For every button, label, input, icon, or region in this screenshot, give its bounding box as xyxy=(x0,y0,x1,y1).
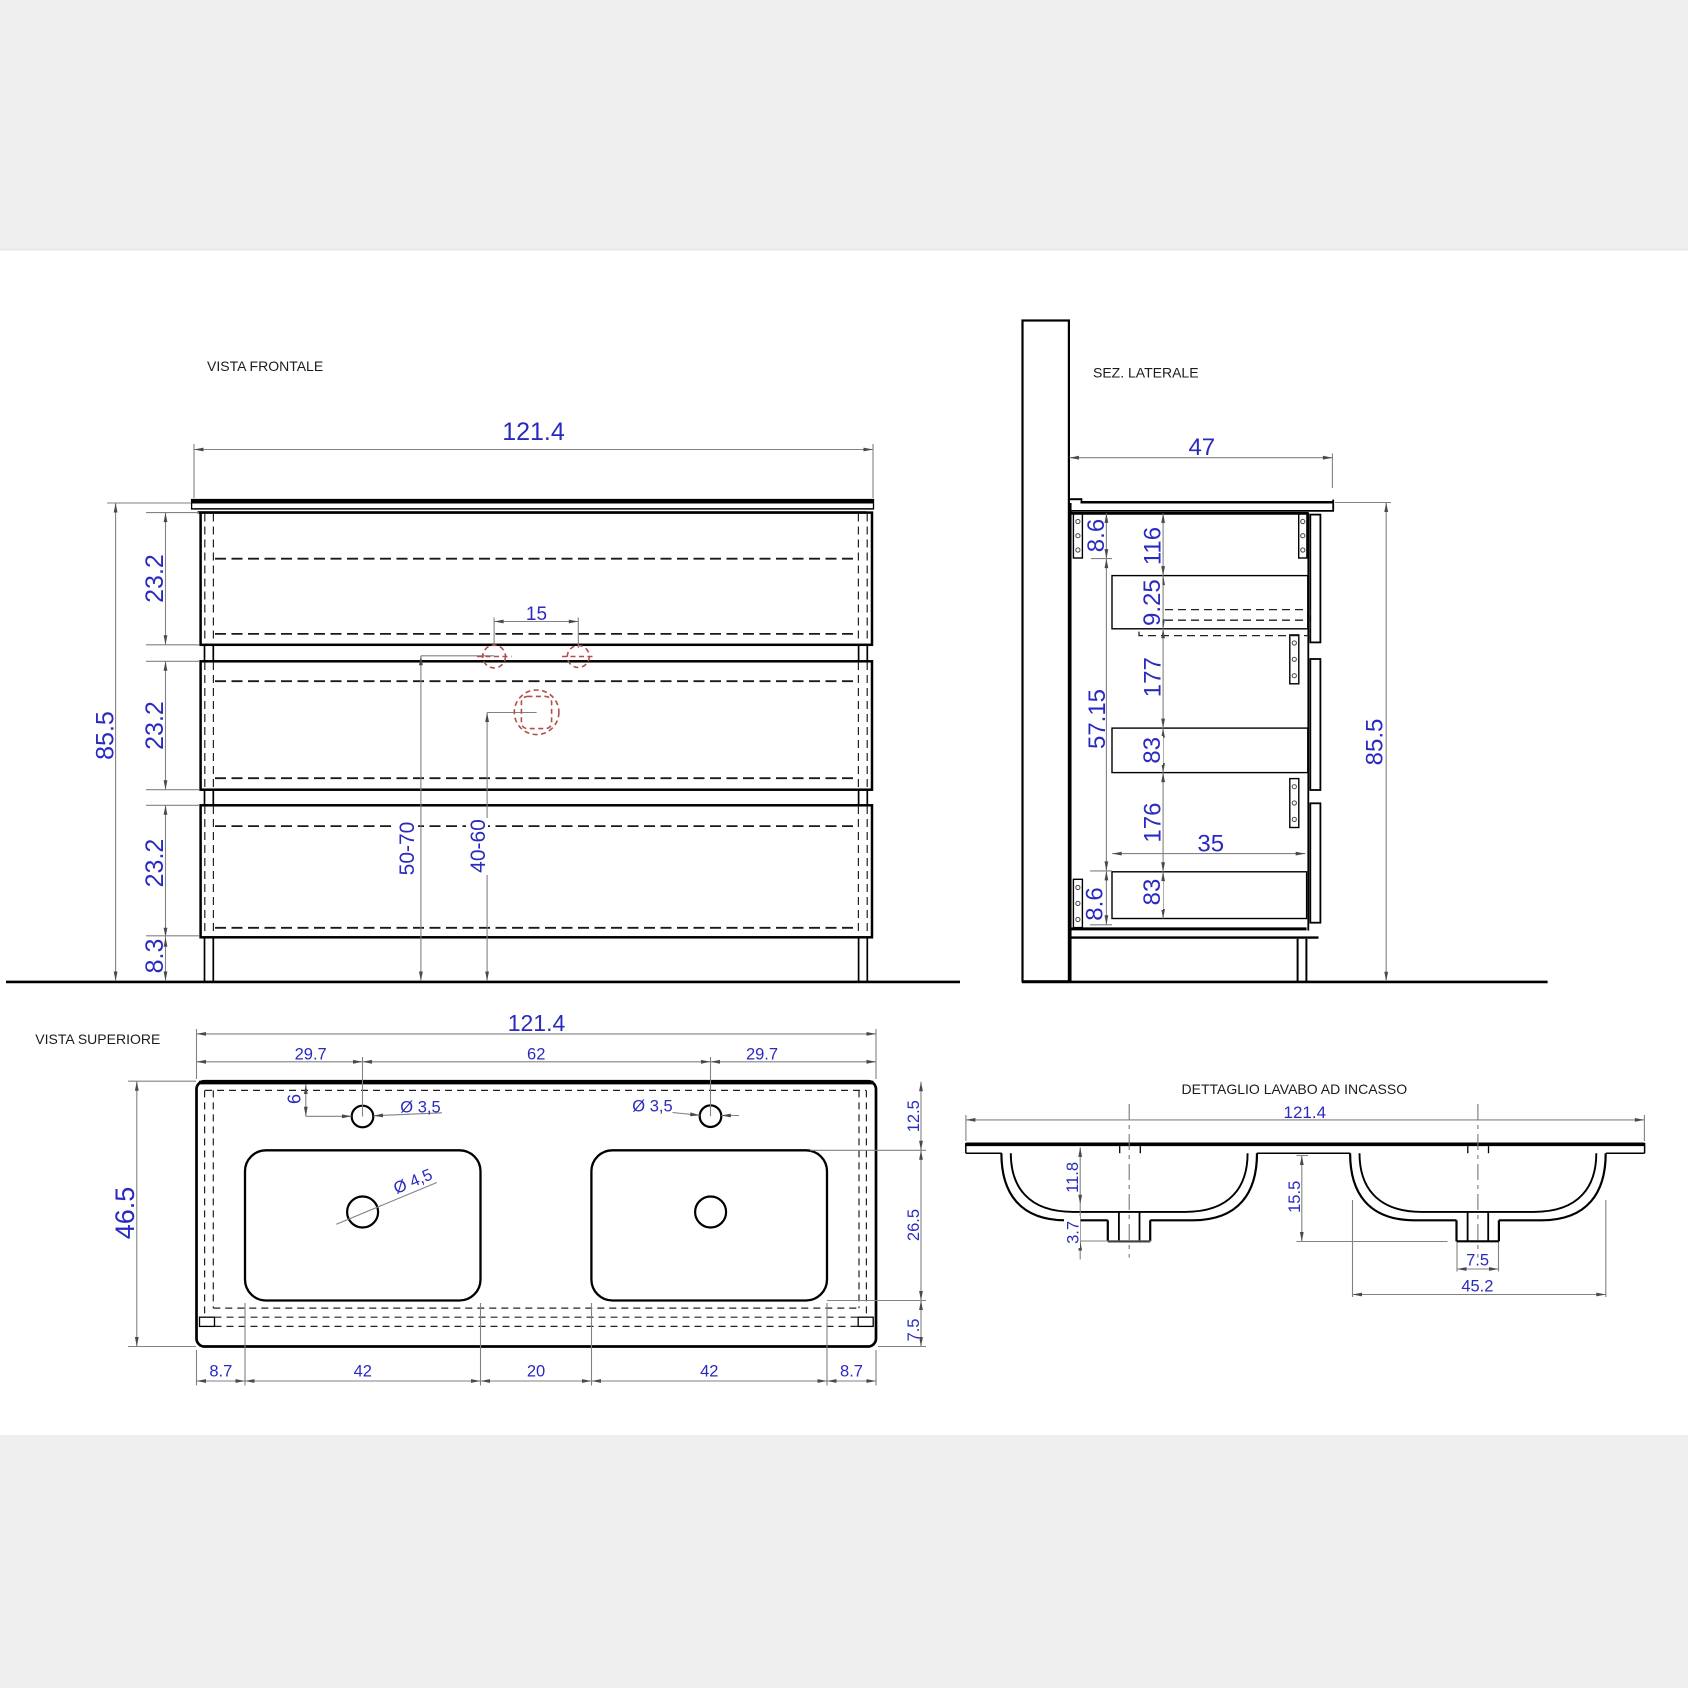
svg-text:177: 177 xyxy=(1140,657,1167,697)
svg-text:57.15: 57.15 xyxy=(1084,689,1111,749)
svg-text:15: 15 xyxy=(526,604,547,625)
svg-text:121.4: 121.4 xyxy=(502,418,565,446)
svg-text:121.4: 121.4 xyxy=(1284,1103,1327,1122)
svg-text:85.5: 85.5 xyxy=(92,711,120,760)
svg-text:7.5: 7.5 xyxy=(905,1319,923,1342)
svg-text:29.7: 29.7 xyxy=(746,1045,778,1063)
svg-text:8.7: 8.7 xyxy=(840,1363,863,1381)
svg-text:8.6: 8.6 xyxy=(1082,887,1109,920)
svg-text:29.7: 29.7 xyxy=(295,1045,327,1063)
svg-text:3.7: 3.7 xyxy=(1064,1221,1082,1244)
svg-text:Ø 3,5: Ø 3,5 xyxy=(400,1099,440,1117)
svg-text:8.7: 8.7 xyxy=(209,1363,232,1381)
svg-text:VISTA SUPERIORE: VISTA SUPERIORE xyxy=(35,1031,160,1047)
svg-text:40-60: 40-60 xyxy=(467,819,490,873)
svg-text:23.2: 23.2 xyxy=(141,839,169,888)
svg-text:9.25: 9.25 xyxy=(1139,579,1166,626)
svg-text:85.5: 85.5 xyxy=(1362,719,1389,766)
svg-text:50-70: 50-70 xyxy=(396,822,419,876)
svg-text:42: 42 xyxy=(700,1363,718,1381)
svg-text:26.5: 26.5 xyxy=(905,1209,923,1241)
svg-text:47: 47 xyxy=(1188,434,1215,461)
svg-text:83: 83 xyxy=(1139,737,1166,764)
svg-text:42: 42 xyxy=(354,1363,372,1381)
svg-text:23.2: 23.2 xyxy=(141,701,169,750)
svg-text:8.6: 8.6 xyxy=(1083,519,1110,552)
svg-text:121.4: 121.4 xyxy=(508,1010,566,1036)
svg-text:Ø 3,5: Ø 3,5 xyxy=(632,1098,672,1116)
svg-text:35: 35 xyxy=(1197,831,1224,858)
svg-text:23.2: 23.2 xyxy=(141,554,169,603)
svg-text:11.8: 11.8 xyxy=(1064,1162,1082,1193)
svg-text:SEZ. LATERALE: SEZ. LATERALE xyxy=(1093,365,1199,381)
svg-text:62: 62 xyxy=(527,1045,545,1063)
svg-text:20: 20 xyxy=(527,1363,545,1381)
svg-text:7.5: 7.5 xyxy=(1466,1252,1489,1270)
svg-text:DETTAGLIO LAVABO AD INCASSO: DETTAGLIO LAVABO AD INCASSO xyxy=(1182,1081,1408,1097)
svg-text:116: 116 xyxy=(1140,527,1167,565)
svg-text:6: 6 xyxy=(285,1094,305,1104)
svg-text:VISTA FRONTALE: VISTA FRONTALE xyxy=(207,358,323,374)
svg-text:8.3: 8.3 xyxy=(141,939,169,974)
svg-text:83: 83 xyxy=(1139,879,1166,906)
svg-text:15.5: 15.5 xyxy=(1286,1181,1304,1213)
svg-text:45.2: 45.2 xyxy=(1461,1278,1493,1296)
svg-text:46.5: 46.5 xyxy=(110,1187,140,1240)
svg-text:176: 176 xyxy=(1140,803,1167,843)
svg-text:12.5: 12.5 xyxy=(905,1100,923,1132)
